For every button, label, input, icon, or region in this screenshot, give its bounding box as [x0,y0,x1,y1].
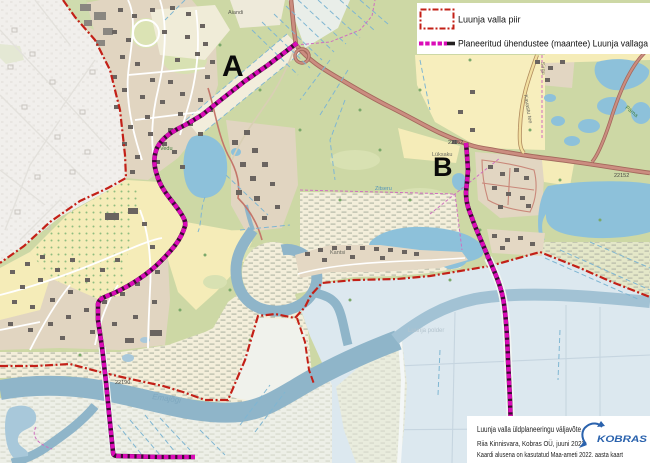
svg-text:KOBRAS: KOBRAS [597,434,648,445]
svg-text:Luunja valla üldplaneeringu vä: Luunja valla üldplaneeringu väljavõte [477,425,581,434]
svg-text:A: A [222,50,244,83]
svg-text:22152: 22152 [614,173,629,179]
svg-text:Riia Kinnisvara, Kobras OÜ, ju: Riia Kinnisvara, Kobras OÜ, juuni 2022 [477,439,585,448]
svg-text:22152: 22152 [448,140,463,146]
svg-text:22190: 22190 [115,380,130,386]
svg-text:Planeeritud ühendustee (maante: Planeeritud ühendustee (maantee) Luunja … [458,39,648,49]
svg-text:Sirgu: Sirgu [539,62,546,75]
svg-text:Lüksaku: Lüksaku [432,152,453,158]
svg-text:Luunja polder: Luunja polder [408,328,444,334]
svg-text:Zitseru: Zitseru [375,186,392,192]
svg-text:Kantsi: Kantsi [330,250,345,256]
svg-text:Aiandi: Aiandi [228,10,243,16]
svg-text:Luunja valla piir: Luunja valla piir [458,15,521,25]
svg-text:Kaardi alusena on kasutatud Ma: Kaardi alusena on kasutatud Maa-ameti 20… [477,452,623,459]
svg-text:Vedu: Vedu [160,146,173,152]
